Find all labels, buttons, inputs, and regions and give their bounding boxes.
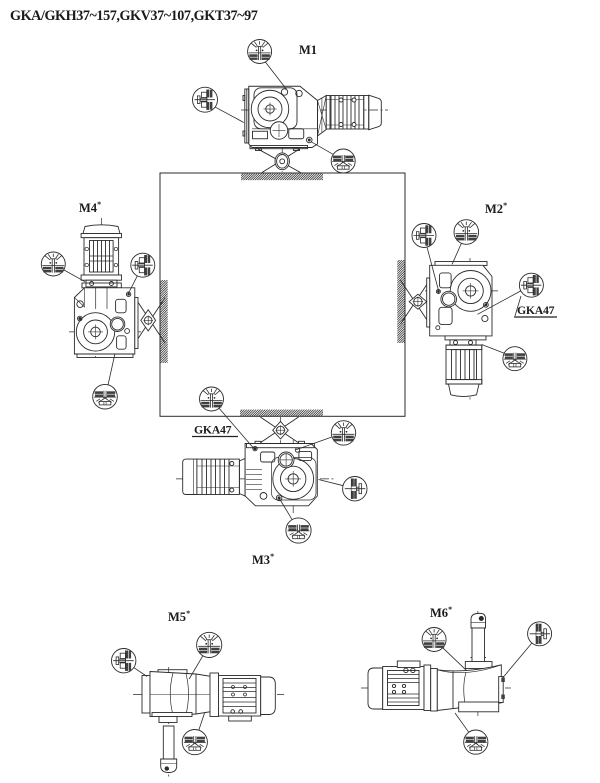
svg-text:GKA47: GKA47 [517,303,555,317]
svg-text:M1: M1 [299,43,317,57]
svg-text:GKA/GKH37~157,GKV37~107,GKT37~: GKA/GKH37~157,GKV37~107,GKT37~97 [10,8,258,24]
svg-text:GKA47: GKA47 [194,423,232,437]
